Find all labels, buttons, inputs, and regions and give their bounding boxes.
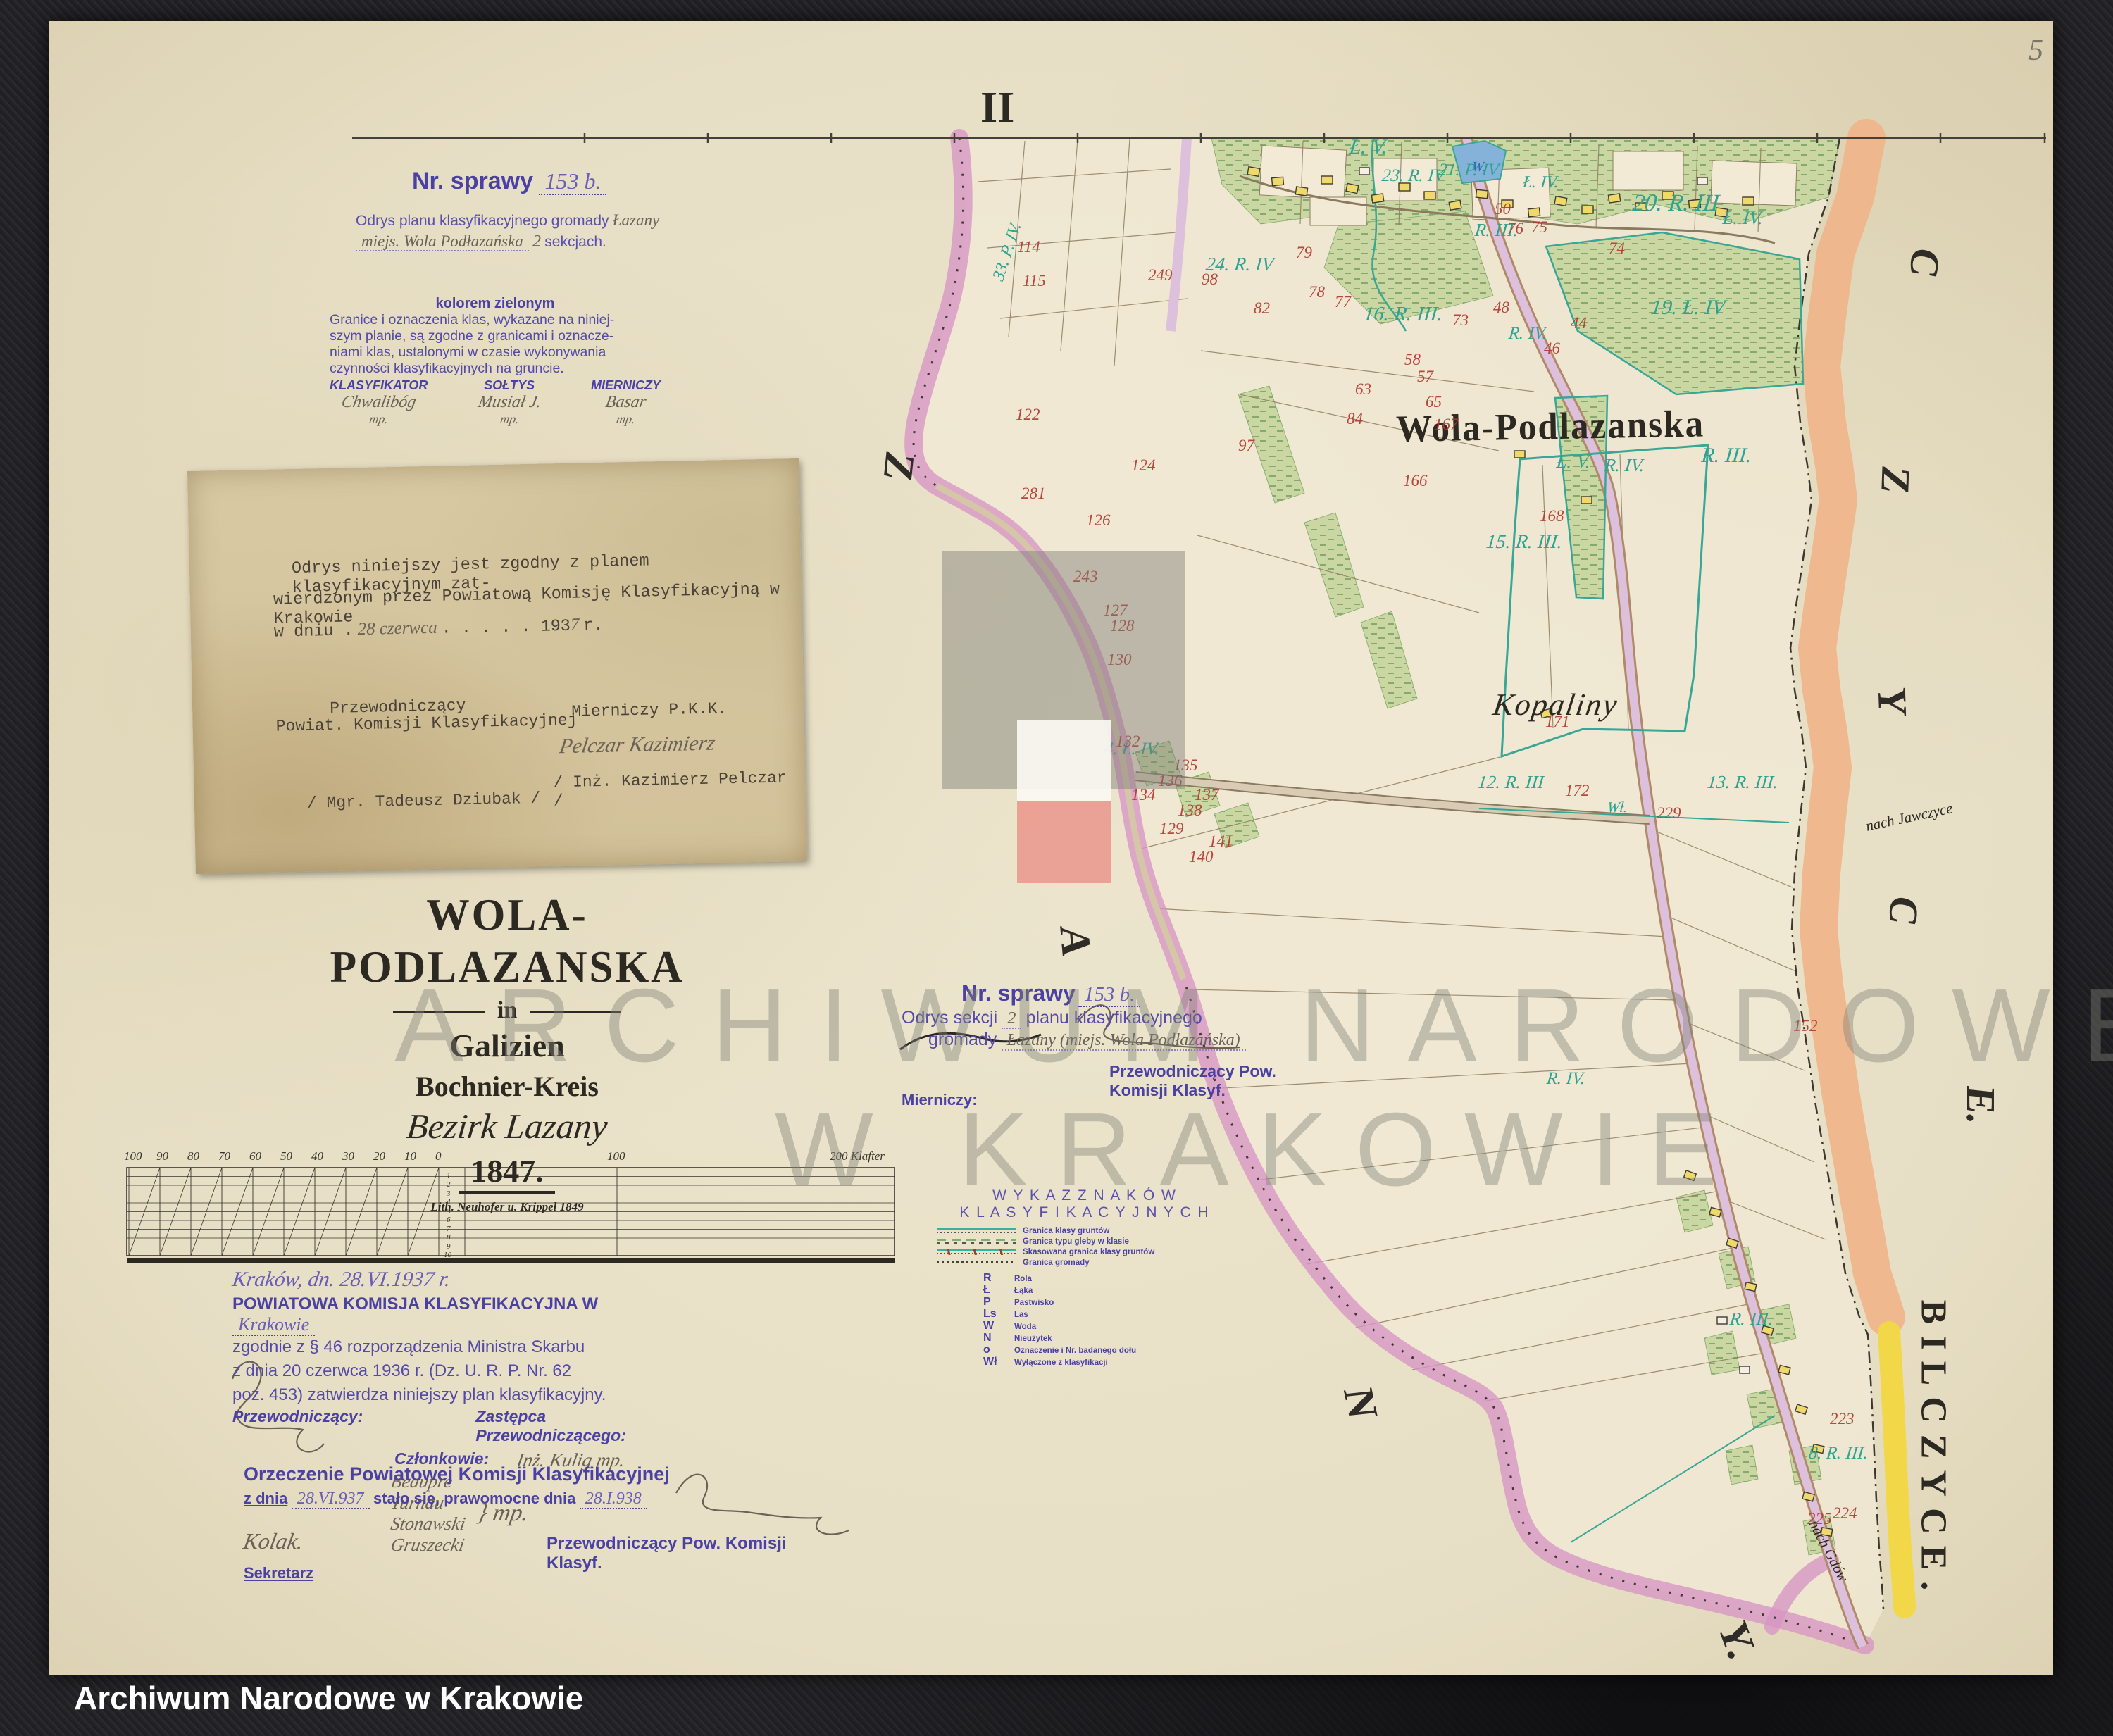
map-title-bezirk: Bezirk Lazany — [237, 1106, 777, 1147]
legend-letter-row: o Oznaczenie i Nr. badanego dołu — [983, 1344, 1233, 1356]
legend-label: Granica typu gleby w klasie — [1023, 1237, 1129, 1246]
map-title-block: WOLA-PODLAZANSKA in Galizien Bochnier-Kr… — [239, 889, 775, 1214]
legend-label: Granica klasy gruntów — [1023, 1227, 1109, 1235]
land-use-symbol: Ls — [983, 1308, 1014, 1320]
case-desc-sections: sekcjach. — [544, 234, 606, 250]
role-column: MIERNICZY Basar mp. — [591, 378, 661, 427]
cancelled-boundary-symbol — [937, 1249, 1016, 1255]
legend-letter-row: Ł Łąka — [983, 1284, 1233, 1296]
green-note-lines: Granice i oznaczenia klas, wykazane na n… — [330, 312, 661, 377]
legend-row-class-boundary: Granica klasy gruntów — [937, 1225, 1233, 1236]
legend-letter-row: N Nieużytek — [983, 1332, 1233, 1344]
land-use-symbol: Wł — [983, 1356, 1014, 1368]
legend-row-cancelled-boundary: Skasowana granica klasy gruntów — [937, 1247, 1233, 1257]
land-use-label: Oznaczenie i Nr. badanego dołu — [1014, 1347, 1136, 1355]
archive-footer-label: Archiwum Narodowe w Krakowie — [74, 1679, 583, 1717]
gromada-boundary-symbol — [937, 1259, 1016, 1266]
section-note-block: Nr. sprawy 153 b. Odrys sekcji 2 planu k… — [902, 980, 1338, 1109]
land-use-symbol: R — [983, 1272, 1014, 1285]
cert-line3-post: . . . . . 193 — [441, 617, 571, 639]
cert-right-name: / Inż. Kazimierz Pelczar / — [553, 768, 806, 810]
land-use-label: Łąka — [1014, 1287, 1033, 1295]
legend-letter-list: R Rola Ł Łąka P Pastwisko Ls Las — [983, 1272, 1233, 1368]
role-mp: mp. — [328, 412, 429, 427]
green-note-line: szym planie, są zgodne z granicami i ozn… — [330, 328, 661, 344]
cert-right-signature: Pelczar Kazimierz — [558, 731, 717, 758]
ruling-line2-mid: stało się, prawomocne dnia — [373, 1490, 575, 1507]
legend-letter-row: W Woda — [983, 1320, 1233, 1332]
neighbor-village-label: BILCZYCE. — [1913, 1300, 1955, 1602]
land-use-symbol: o — [983, 1344, 1014, 1356]
section-chairman-label: Przewodniczący Pow. Komisji Klasyf. — [1109, 1062, 1338, 1100]
role-title: KLASYFIKATOR — [330, 378, 428, 393]
cert-date-hand: 28 czerwca — [357, 618, 437, 639]
case-desc-stamp: Odrys planu klasyfikacyjnego gromady — [356, 213, 609, 229]
area-name-label: Kopaliny — [1490, 687, 1620, 723]
section-line2-pre: gromady — [928, 1030, 997, 1049]
ruling-block: Orzeczenie Powiatowej Komisji Klasyfikac… — [244, 1463, 793, 1582]
role-mp: mp. — [590, 412, 662, 427]
class-boundary-symbol — [937, 1228, 1016, 1234]
case-number-value: 153 b. — [539, 168, 606, 195]
section-line1-pre: Odrys sekcji — [902, 1008, 997, 1028]
classification-legend: W Y K A Z Z N A K Ó W K L A S Y F I K A … — [937, 1187, 1233, 1368]
legend-letter-row: R Rola — [983, 1272, 1233, 1284]
land-use-symbol: W — [983, 1320, 1014, 1332]
approval-city-hand: Krakowie — [232, 1314, 315, 1336]
ruling-chairman-label: Przewodniczący Pow. Komisji Klasyf. — [547, 1534, 793, 1573]
legend-label: Granica gromady — [1023, 1259, 1090, 1267]
map-title-year: 1847. — [459, 1152, 555, 1194]
cert-line3-pre: w dniu . — [274, 621, 354, 642]
land-use-symbol: Ł — [983, 1284, 1014, 1297]
approval-chairman-label: Przewodniczący: — [232, 1407, 363, 1445]
role-mp: mp. — [477, 412, 542, 427]
case-desc-gromada: Łazany — [613, 211, 659, 229]
ruling-line2-pre: z dnia — [244, 1490, 287, 1507]
section-case-number: 153 b. — [1078, 983, 1141, 1007]
map-title-region: Galizien — [239, 1027, 775, 1064]
land-use-label: Woda — [1014, 1323, 1036, 1331]
cert-line3-end: r. — [583, 616, 604, 636]
ruling-date1: 28.VI.937 — [292, 1490, 370, 1509]
certificate-card: Odrys niniejszy jest zgodny z planem kla… — [187, 458, 807, 874]
role-signature: Basar — [590, 393, 663, 412]
case-description: Odrys planu klasyfikacyjnego gromady Łaz… — [356, 211, 750, 251]
land-use-label: Pastwisko — [1014, 1299, 1054, 1307]
green-note-line: niami klas, ustalonymi w czasie wykonywa… — [330, 344, 661, 361]
green-note-line: Granice i oznaczenia klas, wykazane na n… — [330, 312, 661, 328]
soil-boundary-symbol — [937, 1238, 1016, 1244]
legend-row-soil-boundary: Granica typu gleby w klasie — [937, 1236, 1233, 1247]
land-use-label: Las — [1014, 1311, 1028, 1319]
section-gromada-hand: Łazany (miejs. Wola Podłazańska) — [1002, 1031, 1246, 1051]
green-note-line: czynności klasyfikacyjnych na gruncie. — [330, 361, 661, 377]
section-case-label: Nr. sprawy — [961, 980, 1076, 1006]
approval-deputy-label: Zastępca Przewodniczącego: — [475, 1407, 683, 1445]
role-title: SOŁTYS — [478, 378, 541, 393]
land-use-symbol: P — [983, 1296, 1014, 1309]
cert-year-hand: 7 — [571, 616, 580, 635]
legend-row-gromada-boundary: Granica gromady — [937, 1257, 1233, 1268]
green-note-roles: KLASYFIKATOR Chwalibóg mp. SOŁTYS Musiał… — [330, 378, 661, 427]
green-ink-note: kolorem zielonym Granice i oznaczenia kl… — [330, 296, 661, 427]
approval-commission: POWIATOWA KOMISJA KLASYFIKACYJNA W — [232, 1294, 598, 1313]
ruling-line1: Orzeczenie Powiatowej Komisji Klasyfikac… — [244, 1463, 793, 1485]
role-signature: Chwalibóg — [328, 393, 430, 412]
role-signature: Musiał J. — [476, 393, 542, 412]
sheet-numeral: II — [980, 83, 1014, 133]
map-title: WOLA-PODLAZANSKA — [250, 889, 764, 993]
green-note-heading: kolorem zielonym — [330, 296, 661, 312]
village-name-label: Wola-Podlazanska — [1395, 401, 1704, 451]
cert-left-name: / Mgr. Tadeusz Dziubak / — [307, 789, 541, 813]
approval-date: Kraków, dn. 28.VI.1937 r. — [231, 1268, 685, 1292]
legend-label: Skasowana granica klasy gruntów — [1023, 1248, 1154, 1256]
legend-letter-row: Wł Wyłączone z klasyfikacji — [983, 1356, 1233, 1368]
cert-right-role: Mierniczy P.K.K. — [571, 699, 727, 721]
land-use-symbol: N — [983, 1332, 1014, 1344]
case-desc-sections-num: 2 — [532, 232, 541, 251]
case-desc-village: miejs. Wola Podłazańska — [356, 232, 529, 251]
section-number-hand: 2 — [1002, 1009, 1021, 1029]
role-column: KLASYFIKATOR Chwalibóg mp. — [330, 378, 428, 427]
approval-line3: z dnia 20 czerwca 1936 r. (Dz. U. R. P. … — [232, 1359, 683, 1383]
land-use-label: Wyłączone z klasyfikacji — [1014, 1359, 1108, 1367]
lithographer-credit: Lith. Neuhofer u. Krippel 1849 — [239, 1200, 775, 1214]
map-title-in: in — [239, 997, 775, 1024]
approval-line4: poz. 453) zatwierdza niniejszy plan klas… — [232, 1383, 683, 1407]
map-title-kreis: Bochnier-Kreis — [239, 1070, 775, 1103]
legend-letter-row: P Pastwisko — [983, 1296, 1233, 1308]
section-line1-post: planu klasyfikacyjnego — [1026, 1008, 1202, 1028]
legend-title-2: K L A S Y F I K A C Y J N Y C H — [937, 1204, 1233, 1221]
role-column: SOŁTYS Musiał J. mp. — [478, 378, 541, 427]
legend-letter-row: Ls Las — [983, 1308, 1233, 1320]
land-use-label: Nieużytek — [1014, 1335, 1052, 1343]
scanned-map-page: POW. KOMISJA KLASYFIKACYJNA • W KRAKOWIE… — [0, 0, 2113, 1736]
case-number-block: Nr. sprawy 153 b. — [412, 168, 606, 195]
case-number-label: Nr. sprawy — [412, 168, 533, 194]
approval-line2: zgodnie z § 46 rozporządzenia Ministra S… — [232, 1335, 683, 1359]
land-use-label: Rola — [1014, 1275, 1032, 1283]
page-number: 5 — [2028, 34, 2043, 68]
ruling-date2: 28.I.938 — [580, 1490, 647, 1509]
cert-left-role2: Powiat. Komisji Klasyfikacyjnej — [275, 711, 577, 736]
legend-title-1: W Y K A Z Z N A K Ó W — [937, 1187, 1233, 1204]
role-title: MIERNICZY — [591, 378, 661, 393]
